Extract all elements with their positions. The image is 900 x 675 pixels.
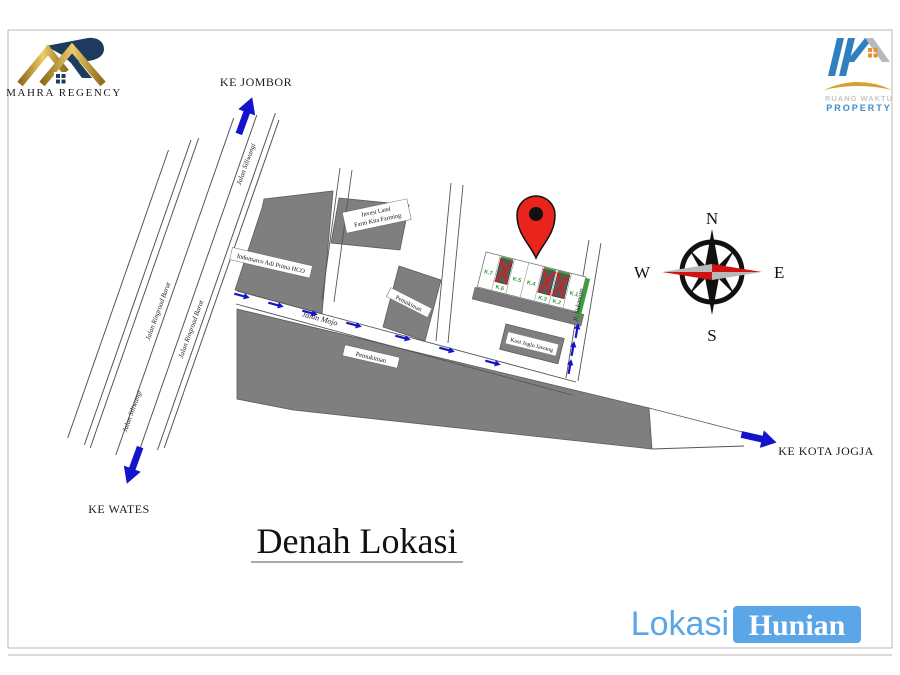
road-label-siliwangi-top: Jalan Siliwangi [235,142,257,186]
compass-w: W [634,263,651,282]
arrow-to-jogja-icon [739,426,778,452]
mahra-logo-text: MAHRA REGENCY [6,87,122,99]
direction-label-east: KE KOTA JOGJA [778,444,874,458]
mahra-regency-logo: MAHRA REGENCY [6,38,122,99]
road-label-siliwangi-bottom: Jalan Siliwangi [121,389,143,433]
direction-label-south: KE WATES [88,502,149,516]
page-title: Denah Lokasi [257,521,458,561]
compass-rose: N S W E [634,209,784,345]
ruang-waktu-logo: RUANG WAKTU PROPERTY [824,38,893,113]
lokasi-text: Lokasi [631,605,729,643]
jogja-road-lines [649,408,746,449]
location-map-page: MAHRA REGENCY RUANG WAKTU PROPERTY [0,0,900,675]
rw-logo-line1: RUANG WAKTU [825,94,893,103]
arrow-to-wates-icon [118,444,148,487]
rw-logo-line2: PROPERTY [826,103,892,113]
lokasi-hunian-logo: Lokasi Hunian [631,605,861,643]
location-pin-icon [517,196,555,258]
building-kost: Kost Joglo Jawang [500,324,565,364]
building-settlement-large [237,309,652,449]
compass-s: S [707,326,716,345]
compass-n: N [706,209,718,228]
direction-label-north: KE JOMBOR [220,75,292,89]
rw-swoosh-icon [824,82,892,90]
map-canvas: MAHRA REGENCY RUANG WAKTU PROPERTY [0,0,900,675]
hunian-text: Hunian [749,609,846,642]
road-label-ringroad-2: Jalan Ringroad Barat [177,298,206,359]
compass-e: E [774,263,784,282]
